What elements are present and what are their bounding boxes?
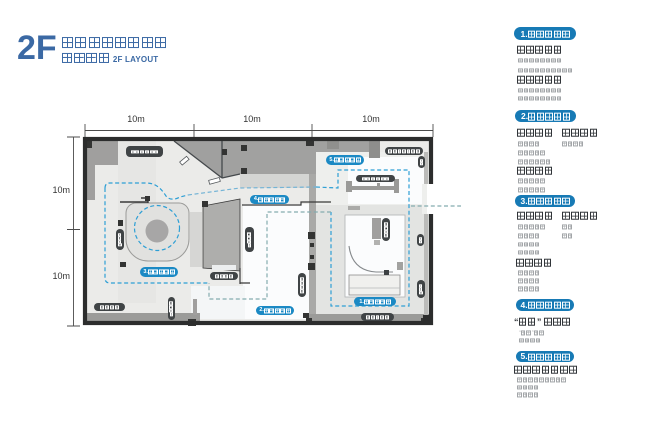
svg-text:10m: 10m — [52, 185, 70, 195]
svg-text:10m: 10m — [52, 271, 70, 281]
svg-text:10m: 10m — [362, 114, 380, 124]
svg-text:10m: 10m — [127, 114, 145, 124]
svg-text:10m: 10m — [243, 114, 261, 124]
